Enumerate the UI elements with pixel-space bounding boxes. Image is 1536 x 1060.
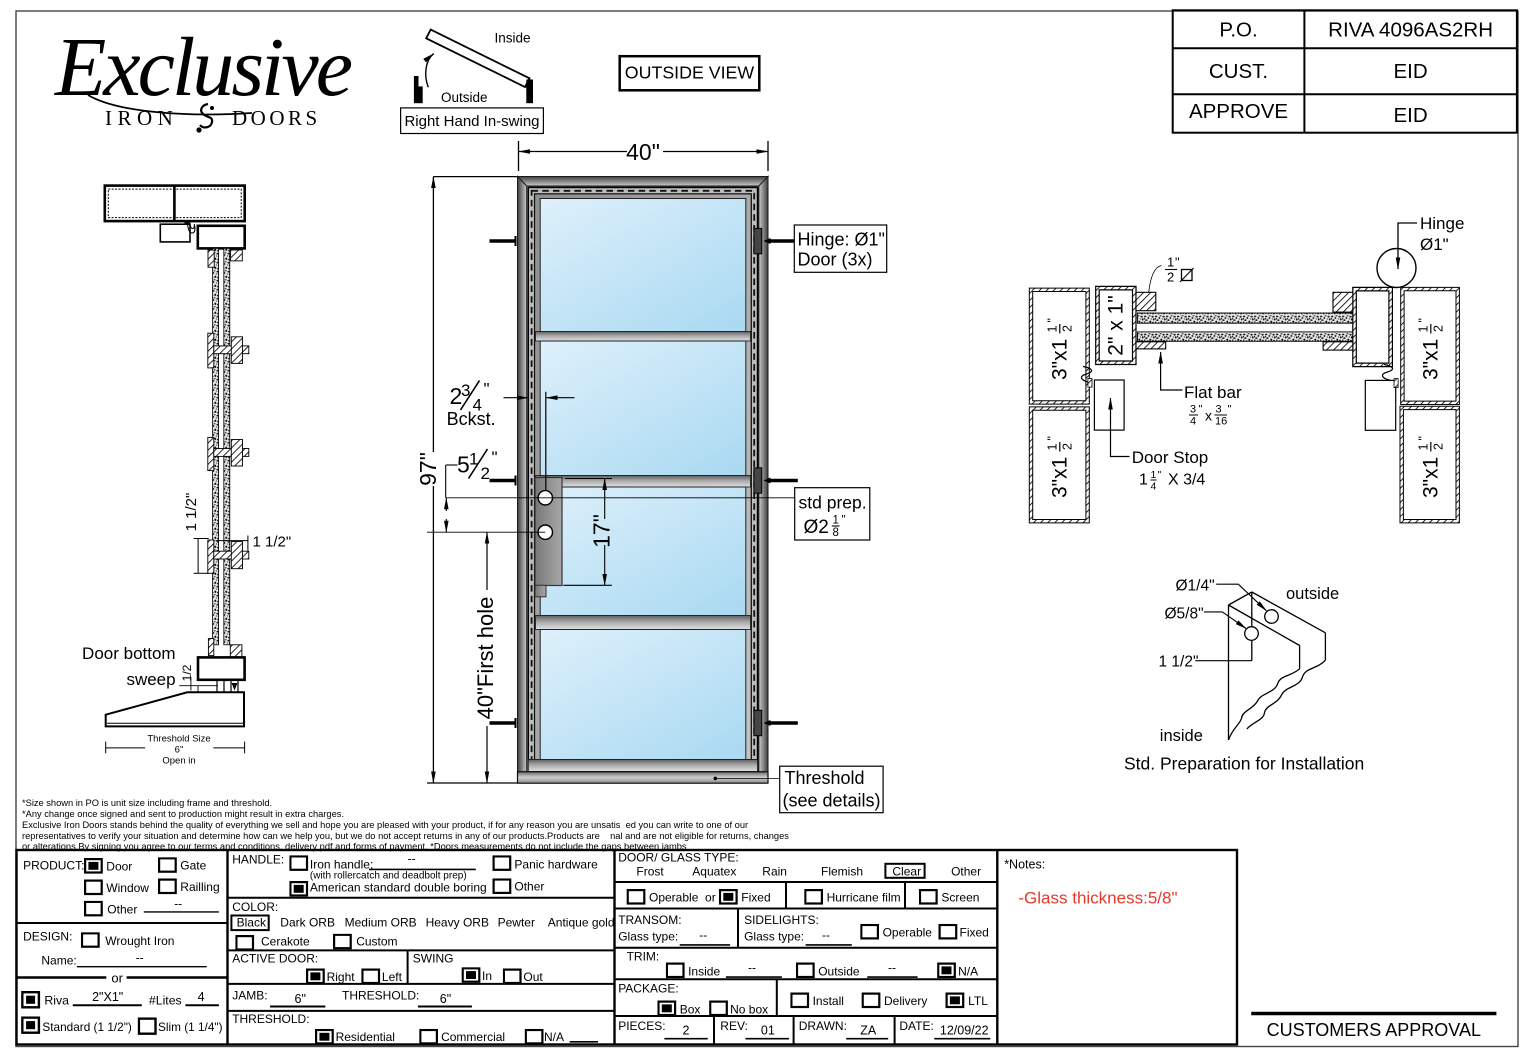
svg-text:": ": [1046, 318, 1060, 322]
svg-text:": ": [1199, 404, 1203, 416]
svg-text:std prep.: std prep.: [799, 493, 867, 513]
svg-text:Hinge: Ø1": Hinge: Ø1": [798, 230, 885, 250]
svg-text:OUTSIDE VIEW: OUTSIDE VIEW: [625, 63, 755, 83]
svg-text:x: x: [1205, 408, 1212, 424]
svg-text:No box: No box: [730, 1003, 768, 1017]
svg-text:2: 2: [1432, 443, 1446, 450]
svg-text:Gate: Gate: [180, 859, 206, 873]
svg-text:*Any change once signed and se: *Any change once signed and sent to prod…: [22, 809, 344, 819]
svg-text:--: --: [408, 852, 416, 866]
svg-text:HANDLE:: HANDLE:: [232, 853, 284, 867]
svg-text:1: 1: [1417, 326, 1431, 333]
svg-text:2: 2: [1061, 443, 1075, 450]
svg-text:--: --: [174, 897, 182, 911]
svg-text:Left: Left: [382, 970, 403, 984]
svg-text:representatives to verify your: representatives to verify your situation…: [22, 831, 789, 841]
svg-text:6": 6": [440, 992, 451, 1006]
svg-text:--: --: [748, 961, 756, 975]
svg-text:--: --: [888, 961, 896, 975]
svg-text:TRANSOM:: TRANSOM:: [618, 913, 681, 927]
svg-text:Pewter: Pewter: [498, 916, 535, 930]
svg-text:Frost: Frost: [636, 865, 664, 879]
svg-text:--: --: [822, 928, 830, 942]
svg-text:DATE:: DATE:: [899, 1019, 933, 1033]
svg-text:3"x1: 3"x1: [1420, 339, 1443, 380]
svg-text:Standard (1 1/2"): Standard (1 1/2"): [42, 1020, 132, 1034]
svg-text:3"x1: 3"x1: [1049, 339, 1072, 380]
svg-text:4: 4: [1151, 481, 1157, 493]
svg-text:SWING: SWING: [413, 952, 454, 966]
svg-text:PACKAGE:: PACKAGE:: [618, 982, 678, 996]
svg-text:5: 5: [457, 452, 470, 478]
svg-text:2: 2: [683, 1024, 690, 1038]
svg-text:Rain: Rain: [762, 865, 787, 879]
svg-text:3"x1: 3"x1: [1049, 457, 1072, 498]
svg-text:Window: Window: [106, 881, 149, 895]
svg-text:Antique gold: Antique gold: [548, 916, 615, 930]
svg-text:Other: Other: [514, 880, 544, 894]
svg-text:": ": [484, 380, 490, 399]
svg-text:PIECES:: PIECES:: [618, 1019, 665, 1033]
svg-text:Residential: Residential: [336, 1030, 395, 1044]
svg-text:DESIGN:: DESIGN:: [23, 930, 72, 944]
svg-text:6": 6": [175, 745, 184, 756]
svg-text:PRODUCT:: PRODUCT:: [23, 859, 84, 873]
svg-text:LTL: LTL: [968, 994, 988, 1008]
svg-text:CUST.: CUST.: [1209, 60, 1268, 83]
svg-text:1 1/2": 1 1/2": [253, 534, 292, 551]
svg-text:Delivery: Delivery: [884, 994, 927, 1008]
svg-text:Door (3x): Door (3x): [798, 250, 873, 270]
svg-text:1: 1: [1139, 472, 1148, 489]
svg-text:Railling: Railling: [180, 880, 219, 894]
svg-text:": ": [492, 448, 498, 467]
svg-text:sweep: sweep: [126, 670, 175, 689]
svg-text:Door bottom: Door bottom: [82, 644, 176, 663]
svg-text:Hinge: Hinge: [1420, 214, 1464, 233]
svg-text:or: or: [111, 971, 123, 986]
svg-text:JAMB:: JAMB:: [232, 989, 267, 1003]
svg-text:Hurricane film: Hurricane film: [827, 891, 901, 905]
svg-text:2"X1": 2"X1": [92, 990, 123, 1004]
svg-text:In: In: [482, 969, 492, 983]
svg-text:3: 3: [1190, 404, 1196, 416]
svg-text:": ": [1417, 318, 1431, 322]
svg-text:": ": [1175, 255, 1180, 270]
svg-text:Door Stop: Door Stop: [1132, 448, 1209, 467]
svg-text:Threshold: Threshold: [785, 768, 865, 788]
svg-text:Inside: Inside: [495, 31, 531, 46]
svg-text:(see details): (see details): [783, 791, 881, 811]
svg-text:Outside: Outside: [818, 965, 860, 979]
svg-text:American standard double borin: American standard double boring: [310, 881, 487, 895]
svg-text:4: 4: [198, 990, 205, 1004]
svg-text:17": 17": [589, 514, 615, 548]
svg-text:Other: Other: [951, 865, 981, 879]
svg-text:Panic hardware: Panic hardware: [514, 858, 598, 872]
svg-text:APPROVE: APPROVE: [1189, 100, 1288, 123]
svg-text:IRON: IRON: [105, 106, 178, 130]
svg-text:--: --: [699, 928, 707, 942]
svg-text:--: --: [136, 951, 144, 965]
svg-text:1 1/2": 1 1/2": [183, 493, 200, 532]
svg-text:Install: Install: [813, 994, 844, 1008]
svg-text:Flat bar: Flat bar: [1184, 383, 1242, 402]
svg-text:DRAWN:: DRAWN:: [799, 1019, 847, 1033]
svg-text:N/A: N/A: [958, 965, 978, 979]
svg-text:2: 2: [1167, 270, 1174, 285]
svg-text:CUSTOMERS APPROVAL: CUSTOMERS APPROVAL: [1267, 1020, 1481, 1040]
svg-text:Ø1": Ø1": [1420, 235, 1449, 254]
svg-text:outside: outside: [1286, 585, 1339, 603]
svg-text:DOORS: DOORS: [232, 106, 321, 130]
svg-text:EID: EID: [1394, 104, 1428, 127]
svg-text:1: 1: [1151, 469, 1157, 481]
svg-text:Std. Preparation for Installat: Std. Preparation for Installation: [1124, 754, 1364, 774]
svg-text:Operable: Operable: [883, 926, 933, 940]
svg-text:8: 8: [833, 527, 839, 539]
svg-text:P.O.: P.O.: [1219, 19, 1257, 42]
svg-text:Dark ORB: Dark ORB: [280, 916, 335, 930]
svg-text:Slim (1 1/4"): Slim (1 1/4"): [158, 1020, 223, 1034]
svg-text:Riva: Riva: [44, 994, 69, 1008]
svg-text:N/A: N/A: [544, 1030, 564, 1044]
svg-text:Fixed: Fixed: [960, 926, 989, 940]
svg-text:*Notes:: *Notes:: [1004, 858, 1045, 872]
svg-text:Iron handle:: Iron handle:: [310, 858, 373, 872]
svg-text:3"x1: 3"x1: [1420, 457, 1443, 498]
svg-text:X 3/4: X 3/4: [1164, 472, 1206, 489]
svg-text:1: 1: [1167, 255, 1174, 270]
svg-text:Glass type:: Glass type:: [618, 930, 678, 944]
svg-text:#Lites: #Lites: [149, 994, 182, 1008]
svg-text:": ": [1046, 436, 1060, 440]
svg-text:": ": [842, 515, 846, 527]
svg-text:Outside: Outside: [441, 90, 488, 105]
svg-text:Operable or: Operable or: [649, 891, 716, 905]
svg-text:TRIM:: TRIM:: [627, 950, 660, 964]
svg-text:-Glass thickness:5/8": -Glass thickness:5/8": [1018, 889, 1177, 908]
svg-text:1: 1: [1417, 444, 1431, 451]
svg-text:Right: Right: [327, 970, 356, 984]
svg-text:3: 3: [1216, 404, 1222, 416]
svg-text:1: 1: [833, 515, 839, 527]
svg-text:Commercial: Commercial: [441, 1030, 505, 1044]
svg-text:1 1/2": 1 1/2": [1159, 654, 1199, 671]
svg-text:RIVA 4096AS2RH: RIVA 4096AS2RH: [1328, 19, 1493, 42]
svg-text:ACTIVE DOOR:: ACTIVE DOOR:: [232, 952, 318, 966]
svg-text:4: 4: [1190, 416, 1196, 428]
svg-text:Screen: Screen: [941, 891, 979, 905]
svg-text:Other: Other: [107, 903, 137, 917]
svg-text:2: 2: [1061, 325, 1075, 332]
svg-text:Aquatex: Aquatex: [692, 865, 736, 879]
svg-text:Bckst.: Bckst.: [447, 409, 496, 429]
svg-text:": ": [1228, 404, 1232, 416]
svg-text:Custom: Custom: [356, 935, 397, 949]
svg-text:REV:: REV:: [720, 1019, 748, 1033]
svg-text:THRESHOLD:: THRESHOLD:: [232, 1012, 309, 1026]
svg-text:THRESHOLD:: THRESHOLD:: [342, 989, 419, 1003]
svg-text:SIDELIGHTS:: SIDELIGHTS:: [744, 913, 819, 927]
svg-text:Ø1/4": Ø1/4": [1176, 578, 1215, 595]
svg-text:Right Hand In-swing: Right Hand In-swing: [404, 113, 539, 130]
svg-text:": ": [1417, 436, 1431, 440]
svg-text:6": 6": [295, 992, 306, 1006]
svg-text:Flemish: Flemish: [821, 865, 863, 879]
svg-text:*Size shown in PO is unit size: *Size shown in PO is unit size including…: [22, 798, 272, 808]
svg-text:DOOR/ GLASS TYPE:: DOOR/ GLASS TYPE:: [618, 851, 738, 865]
svg-text:Name:: Name:: [41, 954, 76, 968]
svg-text:Ø2: Ø2: [804, 517, 829, 538]
svg-text:Ø5/8": Ø5/8": [1165, 606, 1204, 623]
svg-text:40": 40": [626, 139, 660, 165]
svg-text:Open in: Open in: [162, 756, 195, 767]
svg-text:12/09/22: 12/09/22: [940, 1024, 989, 1038]
svg-text:1/2: 1/2: [180, 664, 194, 681]
svg-text:1: 1: [1046, 444, 1060, 451]
svg-text:Clear: Clear: [892, 865, 921, 879]
svg-text:Door: Door: [106, 860, 132, 874]
svg-text:Box: Box: [680, 1003, 701, 1017]
svg-text:Black: Black: [237, 916, 267, 930]
svg-text:97": 97": [415, 452, 441, 486]
svg-text:Inside: Inside: [688, 965, 720, 979]
svg-text:Heavy ORB: Heavy ORB: [426, 916, 489, 930]
svg-text:1: 1: [1046, 326, 1060, 333]
svg-text:inside: inside: [1160, 727, 1203, 745]
svg-text:Wrought Iron: Wrought Iron: [105, 934, 174, 948]
svg-text:ZA: ZA: [860, 1024, 877, 1038]
svg-text:Out: Out: [523, 970, 543, 984]
svg-text:Threshold Size: Threshold Size: [147, 734, 210, 745]
svg-text:01: 01: [761, 1024, 775, 1038]
svg-text:16: 16: [1215, 416, 1227, 428]
svg-text:Exclusive Iron Doors stands be: Exclusive Iron Doors stands behind the q…: [22, 820, 748, 830]
svg-text:EID: EID: [1394, 60, 1428, 83]
svg-text:2" x 1": 2" x 1": [1105, 295, 1128, 355]
svg-text:2: 2: [1432, 325, 1446, 332]
svg-text:Fixed: Fixed: [741, 891, 770, 905]
svg-text:40"First hole: 40"First hole: [473, 597, 498, 720]
svg-text:COLOR:: COLOR:: [232, 900, 278, 914]
svg-text:": ": [1158, 469, 1162, 481]
svg-text:Medium ORB: Medium ORB: [345, 916, 417, 930]
svg-text:Glass type:: Glass type:: [744, 930, 804, 944]
svg-text:Cerakote: Cerakote: [261, 935, 310, 949]
svg-text:2: 2: [481, 464, 490, 483]
